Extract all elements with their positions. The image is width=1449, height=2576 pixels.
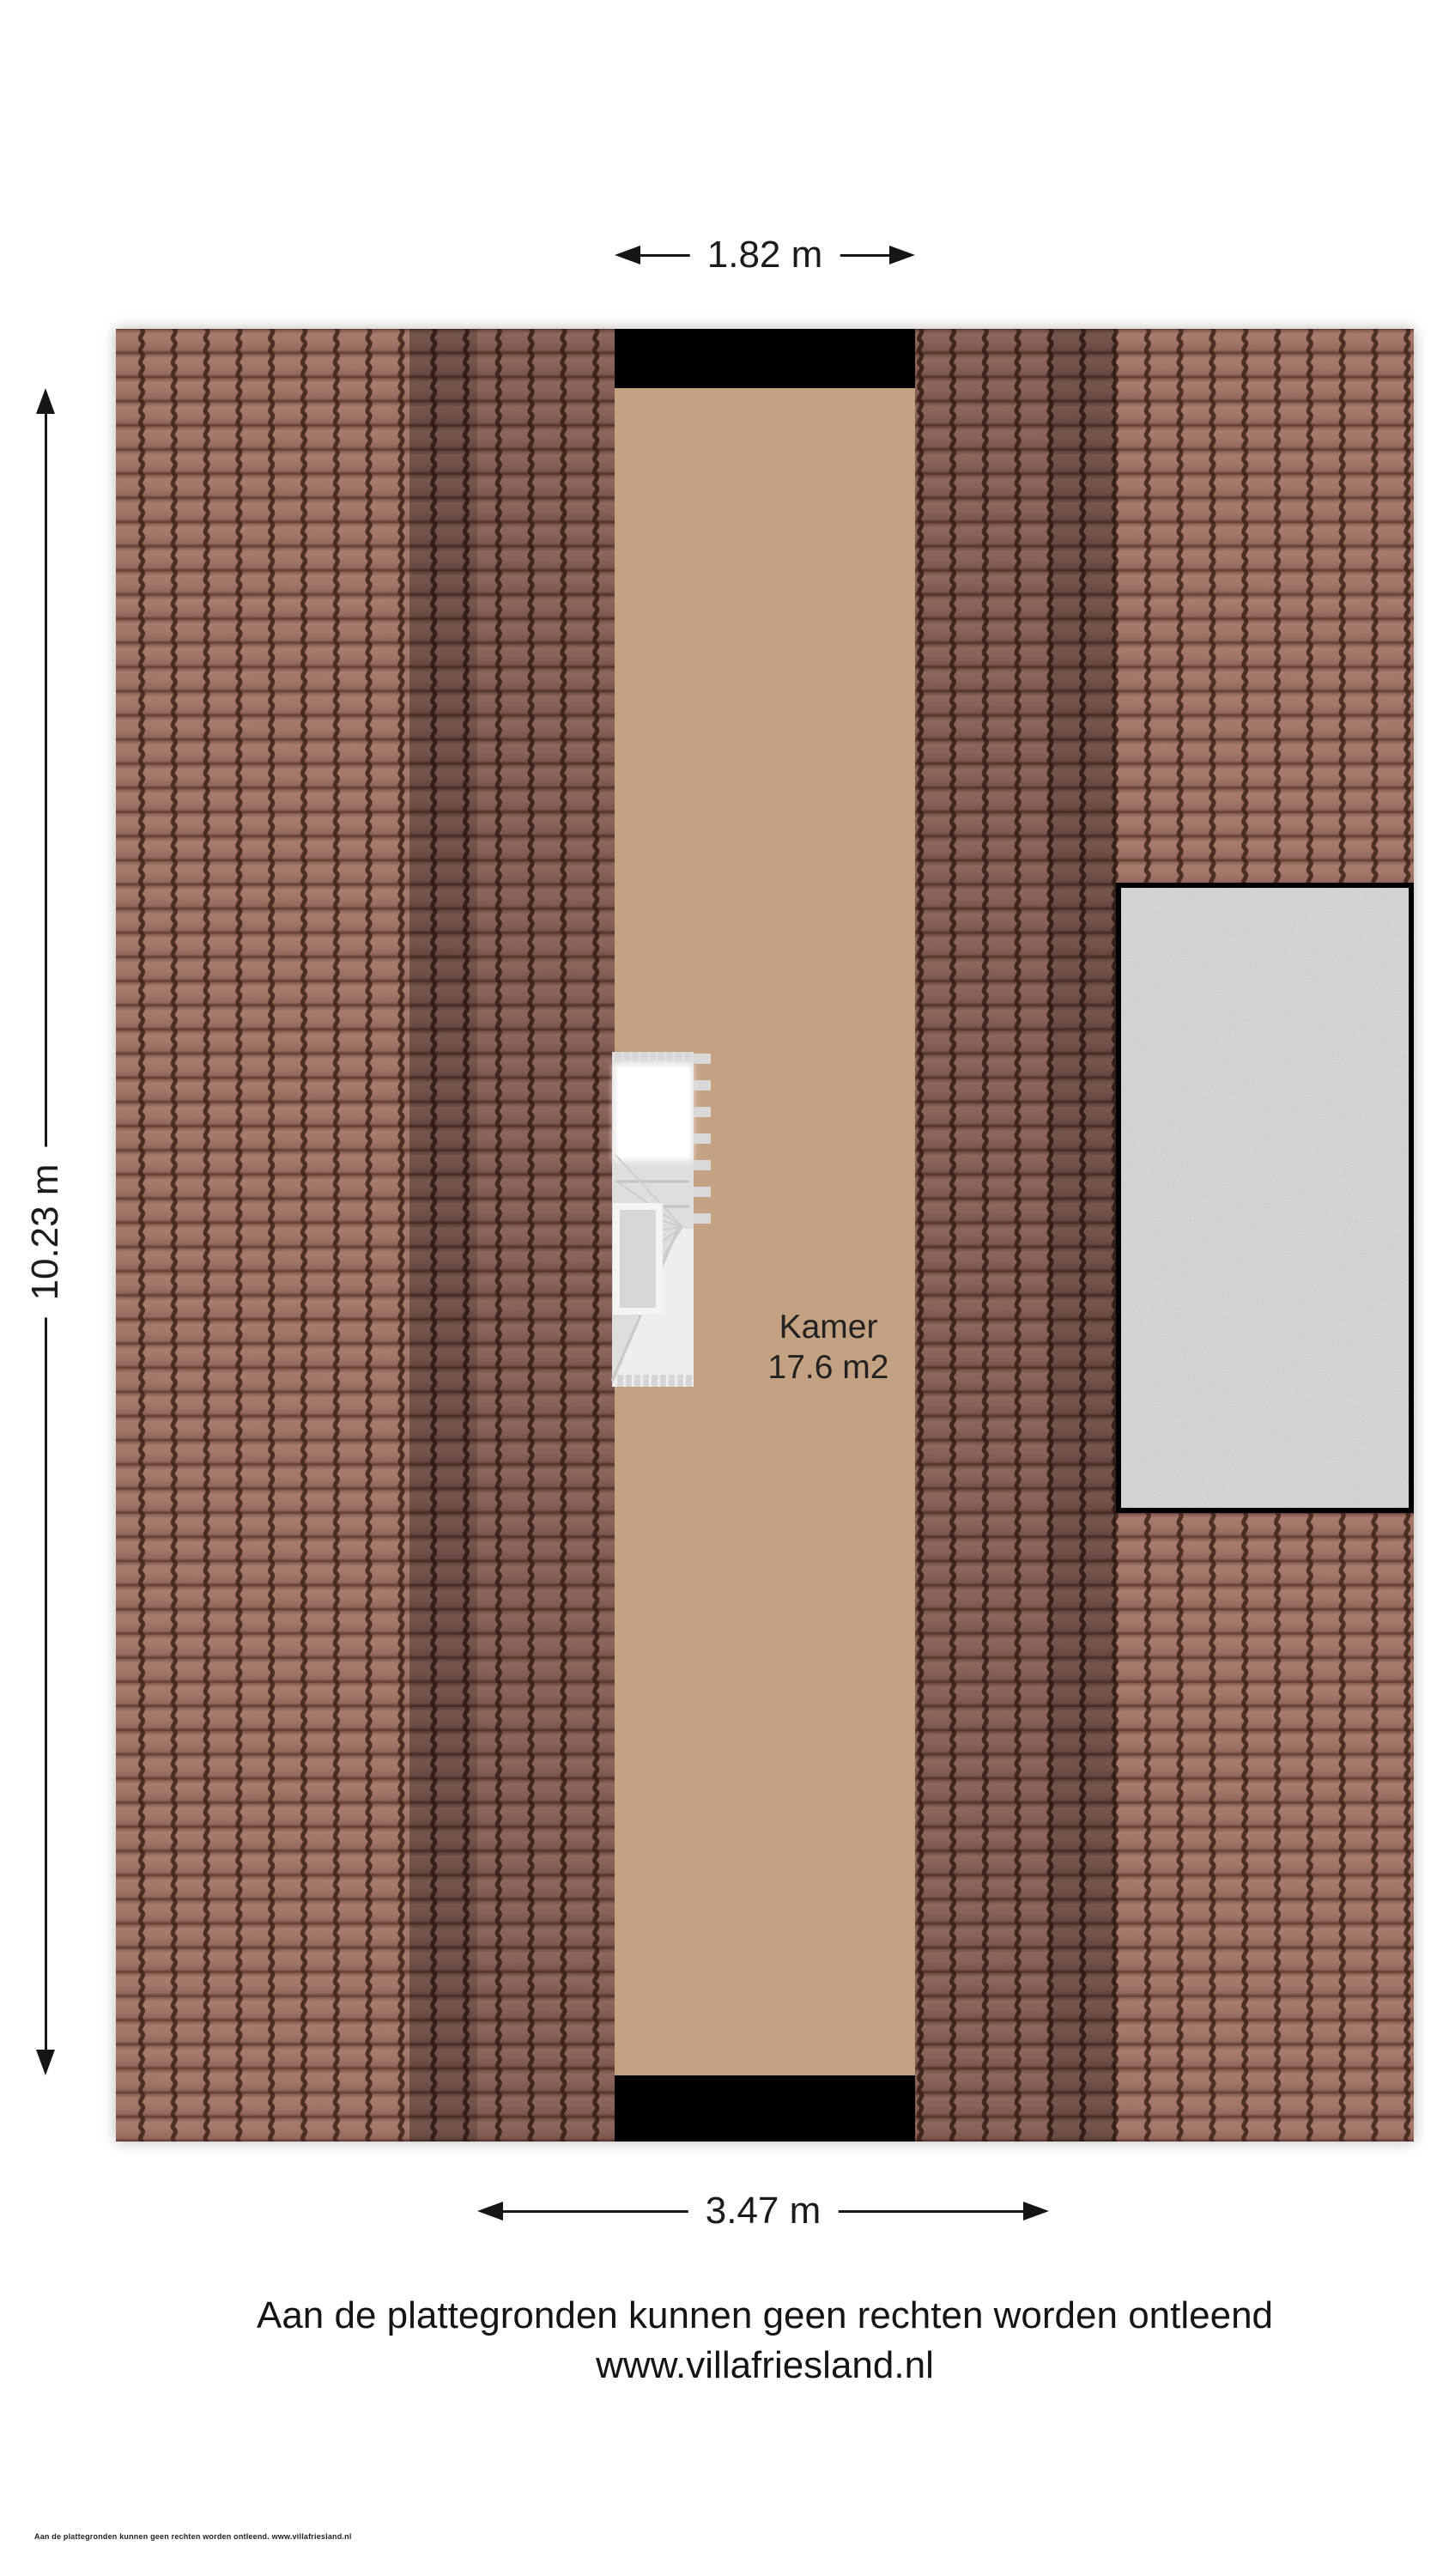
room-label: Kamer 17.6 m2 [712, 1307, 944, 1388]
wall-top [615, 329, 915, 388]
arrowhead-left-icon [477, 2202, 503, 2221]
roof-shadow-right-dark [1049, 329, 1116, 2142]
dimension-left-label: 10.23 m [24, 1146, 67, 1317]
stair-teeth-top [615, 1052, 690, 1062]
footer-disclaimer: Aan de plattegronden kunnen geen rechten… [116, 2291, 1414, 2341]
arrowhead-right-icon [1023, 2202, 1049, 2221]
room-area: 17.6 m2 [712, 1347, 944, 1388]
flat-roof-deck [1119, 885, 1411, 1510]
arrowhead-up-icon [36, 388, 55, 414]
floorplan-page: 1.82 m 10.23 m 3.47 m Kamer 17.6 m2 Aan … [0, 0, 1449, 2576]
wall-bottom [615, 2075, 915, 2142]
room-name: Kamer [712, 1307, 944, 1347]
arrowhead-down-icon [36, 2050, 55, 2075]
stair-lower-flight [616, 1206, 659, 1311]
floorplan-svg [116, 329, 1414, 2142]
fineprint: Aan de plattegronden kunnen geen rechten… [34, 2532, 352, 2541]
roof-shadow-left-medium [477, 329, 615, 2142]
arrowhead-left-icon [615, 246, 640, 264]
dimension-bottom: 3.47 m [477, 2192, 1049, 2230]
dimension-top-label: 1.82 m [690, 234, 840, 276]
footer: Aan de plattegronden kunnen geen rechten… [116, 2291, 1414, 2391]
arrowhead-right-icon [889, 246, 915, 264]
floorplan-canvas [116, 329, 1414, 2142]
dimension-left: 10.23 m [27, 388, 64, 2075]
dimension-bottom-label: 3.47 m [688, 2190, 839, 2233]
roof-shadow-right-medium [915, 329, 1049, 2142]
stair-teeth-bottom [617, 1375, 692, 1387]
dimension-top: 1.82 m [615, 236, 915, 274]
roof-shadow-left-dark [409, 329, 477, 2142]
footer-website: www.villafriesland.nl [116, 2341, 1414, 2391]
stairwell-opening [617, 1067, 689, 1157]
